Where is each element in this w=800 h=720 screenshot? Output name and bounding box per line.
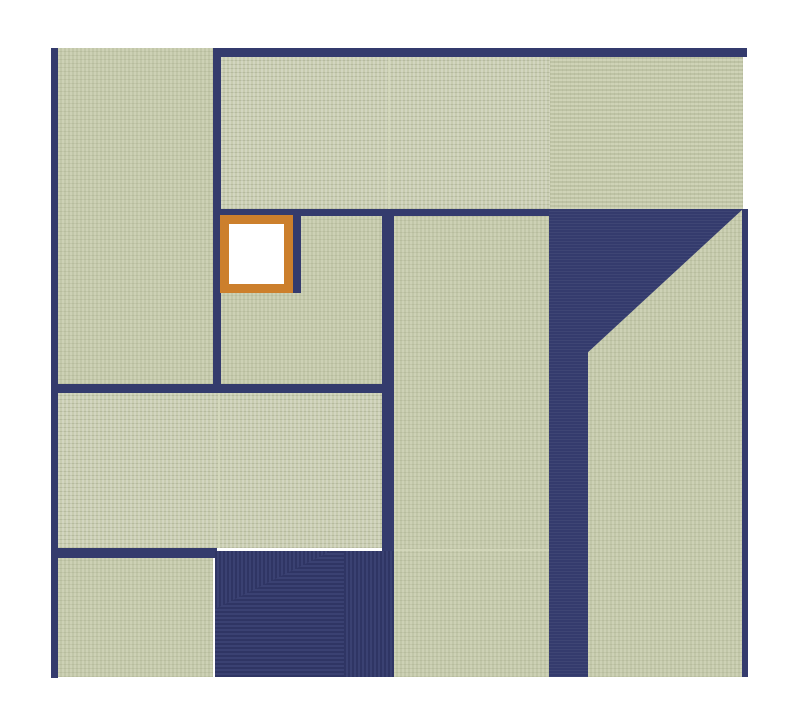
wall-right-of-highlight	[293, 209, 301, 293]
mat-bottom-left[interactable]	[58, 558, 213, 677]
mat-left-upper[interactable]	[58, 48, 213, 384]
wall-left	[51, 48, 58, 678]
seam-top-center	[388, 57, 390, 209]
mat-center[interactable]	[394, 216, 549, 677]
wall-right	[742, 209, 748, 677]
seam-center	[394, 549, 549, 551]
wall-lower-horizontal	[51, 548, 217, 558]
seam-middle-left	[218, 393, 220, 548]
highlight-square[interactable]	[220, 215, 293, 293]
mat-middle-left[interactable]	[58, 393, 382, 548]
mat-top-center[interactable]	[221, 57, 550, 209]
board	[0, 0, 800, 720]
mat-top-right[interactable]	[550, 57, 743, 209]
wall-middle-horizontal	[51, 384, 394, 393]
wall-top	[213, 48, 747, 57]
court-dark	[215, 551, 394, 677]
